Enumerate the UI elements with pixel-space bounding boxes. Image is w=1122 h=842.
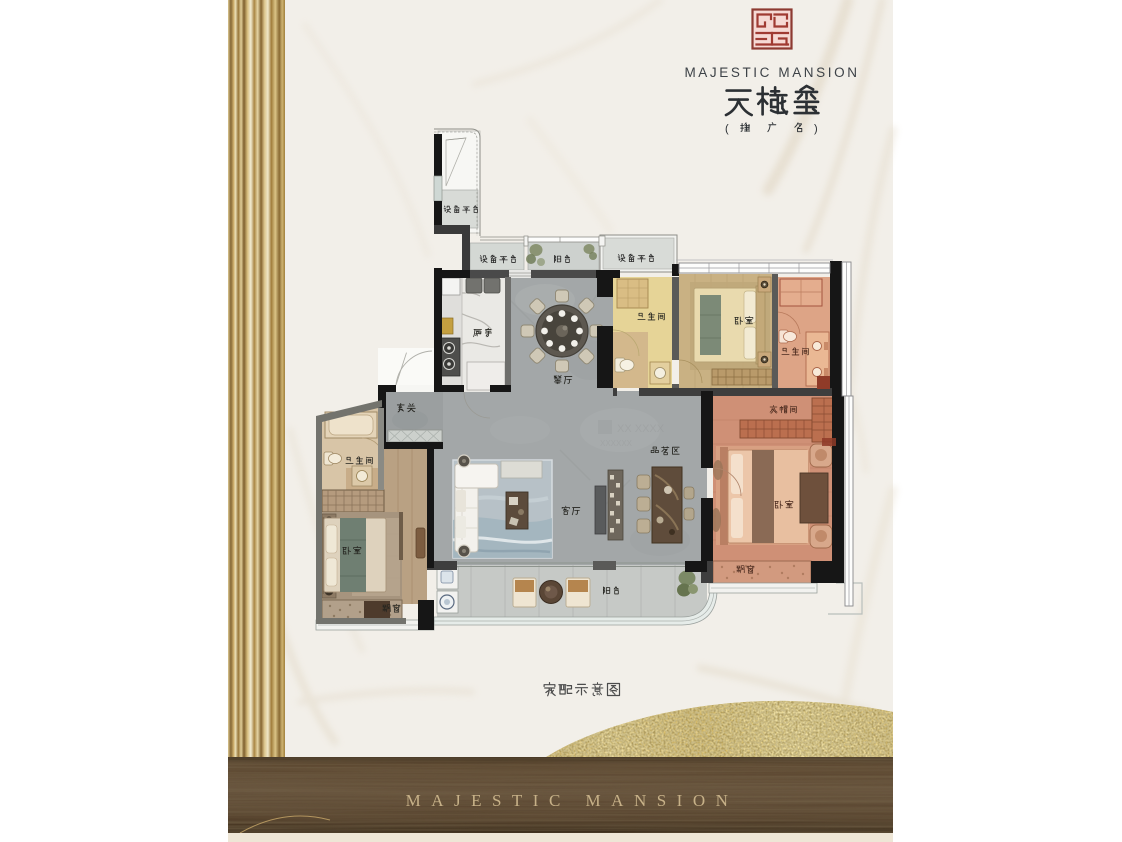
svg-text:MAJESTIC MANSION: MAJESTIC MANSION	[684, 65, 859, 80]
svg-text:): )	[814, 123, 818, 135]
svg-text:XX XXXX: XX XXXX	[617, 423, 665, 435]
svg-text:XXXXXX: XXXXXX	[600, 439, 633, 448]
svg-text:(: (	[725, 123, 729, 135]
svg-text:MAJESTIC MANSION: MAJESTIC MANSION	[406, 791, 739, 810]
